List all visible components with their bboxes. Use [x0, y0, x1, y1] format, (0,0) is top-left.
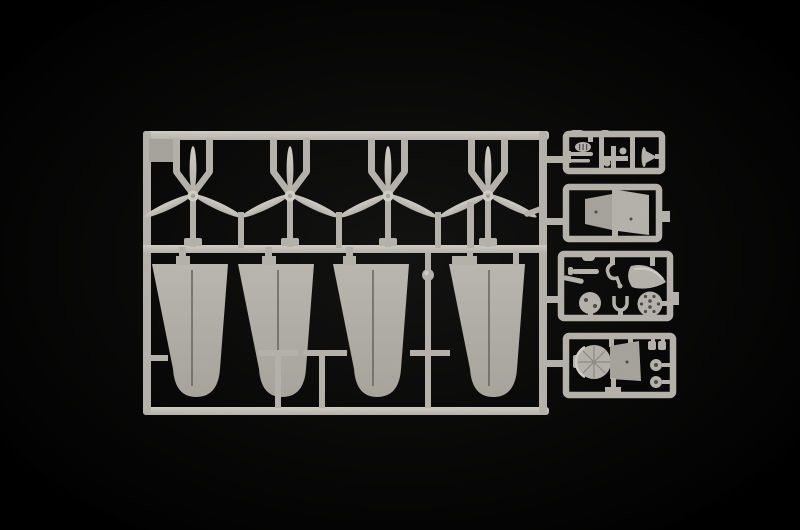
sprue-photo: Light grey injection-moulded model aircr… [0, 0, 800, 530]
photo-canvas: Light grey injection-moulded model aircr… [0, 0, 800, 530]
film-grain [0, 0, 800, 530]
